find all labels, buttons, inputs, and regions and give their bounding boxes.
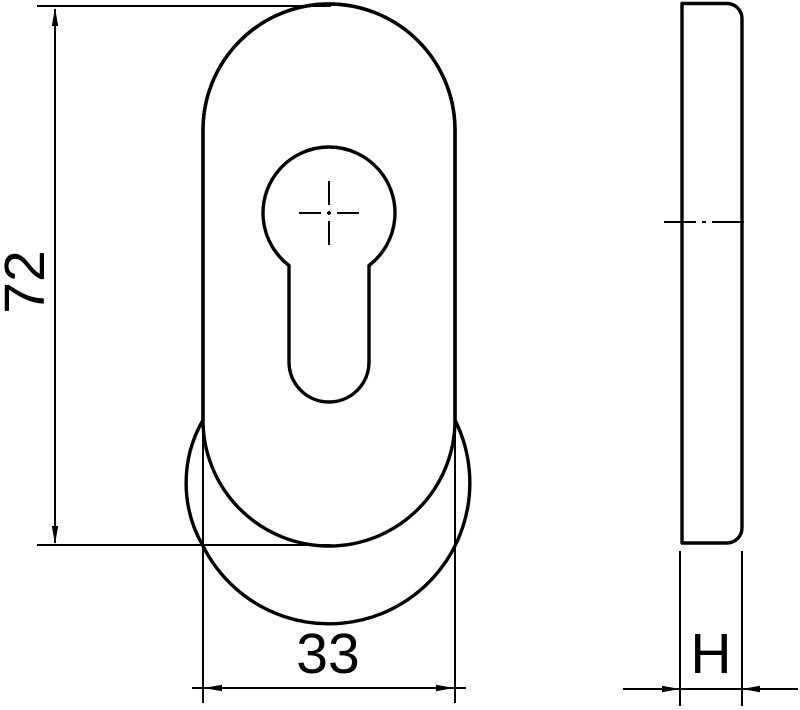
front-view-plate-outline	[186, 4, 470, 624]
dim-72-arrow-top	[52, 8, 58, 26]
technical-drawing-canvas: 72 33 H	[0, 0, 800, 710]
dim-h-arrow-left	[662, 686, 680, 692]
dim-h-arrow-right	[742, 686, 760, 692]
dim-33-label: 33	[296, 622, 359, 686]
dim-h-label: H	[690, 622, 731, 686]
dim-72-arrow-bottom	[52, 526, 58, 544]
dim-33-arrow-left	[204, 685, 222, 691]
front-view-plate-outline-main	[203, 4, 455, 546]
side-view-outline	[682, 4, 742, 544]
dim-33-arrow-right	[436, 685, 454, 691]
dim-72-label: 72	[0, 250, 57, 313]
